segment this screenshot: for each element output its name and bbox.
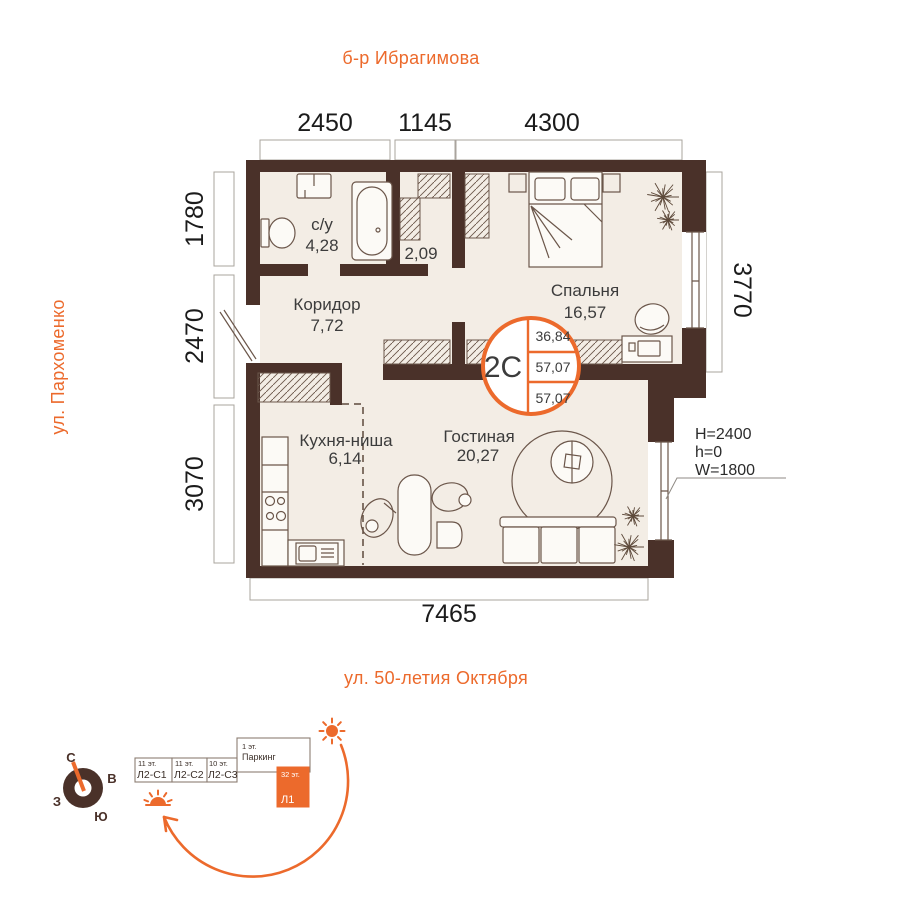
room-area-dressing: 2,09 (404, 244, 437, 263)
bedroom-window (682, 232, 706, 328)
wardrobe-icon (465, 174, 489, 238)
compass: С В З Ю (53, 750, 117, 824)
desk-icon (622, 336, 672, 362)
room-label-bathroom: с/у (311, 215, 333, 234)
wardrobe-icon (258, 373, 330, 402)
dim-bottom-1: 7465 (421, 600, 477, 628)
scheme-tower-floors: 32 эт. (281, 770, 300, 779)
room-label-kitchen: Кухня-ниша (299, 431, 393, 450)
scheme-block-1-floors: 11 эт. (138, 759, 156, 768)
room-label-bedroom: Спальня (551, 281, 619, 300)
wardrobe-icon (400, 198, 420, 240)
street-top: б-р Ибрагимова (342, 48, 480, 68)
scheme-parking-floors: 1 эт. (242, 742, 257, 751)
window-annotation: H=2400 h=0 W=1800 (666, 426, 786, 499)
compass-north: С (66, 750, 76, 765)
scheme-block-2-floors: 11 эт. (175, 759, 193, 768)
apartment-badge: 2С 36,84 57,07 57,07 (483, 318, 579, 414)
dim-left-3: 3070 (181, 456, 209, 512)
street-bottom: ул. 50-летия Октября (344, 668, 528, 688)
dim-left-1: 1780 (181, 191, 209, 247)
chair-icon (437, 522, 462, 548)
room-area-kitchen: 6,14 (328, 449, 361, 468)
street-left: ул. Пархоменко (48, 299, 68, 434)
scheme-block-3-floors: 10 эт. (209, 759, 228, 768)
badge-value-1: 36,84 (535, 328, 570, 344)
sun-icon (320, 719, 345, 744)
dim-top-1: 2450 (297, 109, 353, 137)
scheme-block-1-code: Л2-С1 (137, 769, 167, 781)
entrance-door (220, 305, 260, 363)
scheme-parking-name: Паркинг (242, 752, 276, 762)
sunset-icon (144, 791, 171, 806)
room-area-bedroom: 16,57 (564, 303, 607, 322)
window-note-h: H=2400 (695, 426, 752, 443)
bed-icon (529, 172, 602, 267)
scheme-block-2-code: Л2-С2 (174, 769, 204, 781)
toilet-icon (261, 218, 295, 248)
badge-value-3: 57,07 (535, 390, 570, 406)
compass-west: З (53, 794, 61, 809)
dim-top-2: 1145 (398, 109, 452, 137)
dining-table-icon (398, 475, 431, 555)
bathtub-icon (352, 182, 392, 260)
wardrobe-icon (384, 340, 450, 364)
compass-east: В (107, 771, 116, 786)
room-area-bathroom: 4,28 (305, 236, 338, 255)
scheme-tower-code: Л1 (281, 794, 294, 806)
badge-value-2: 57,07 (535, 359, 570, 375)
compass-south: Ю (94, 809, 107, 824)
building-scheme: 1 эт. Паркинг 11 эт. Л2-С1 11 эт. Л2-С2 … (135, 719, 348, 877)
window-note-hh: h=0 (695, 444, 722, 461)
room-label-corridor: Коридор (293, 295, 360, 314)
room-area-corridor: 7,72 (310, 316, 343, 335)
window-note-w: W=1800 (695, 462, 755, 479)
sofa-icon (500, 517, 616, 563)
dim-top-3: 4300 (524, 109, 580, 137)
room-label-living: Гостиная (443, 427, 514, 446)
dim-right-1: 3770 (728, 262, 756, 318)
room-area-living: 20,27 (457, 446, 500, 465)
dim-left-2: 2470 (181, 308, 209, 364)
floorplan-canvas: б-р Ибрагимова ул. Пархоменко ул. 50-лет… (0, 0, 900, 899)
floorplan-page: б-р Ибрагимова ул. Пархоменко ул. 50-лет… (0, 0, 900, 899)
wardrobe-icon (418, 174, 450, 198)
scheme-block-3-code: Л2-С3 (208, 769, 238, 781)
badge-code: 2С (484, 351, 522, 384)
